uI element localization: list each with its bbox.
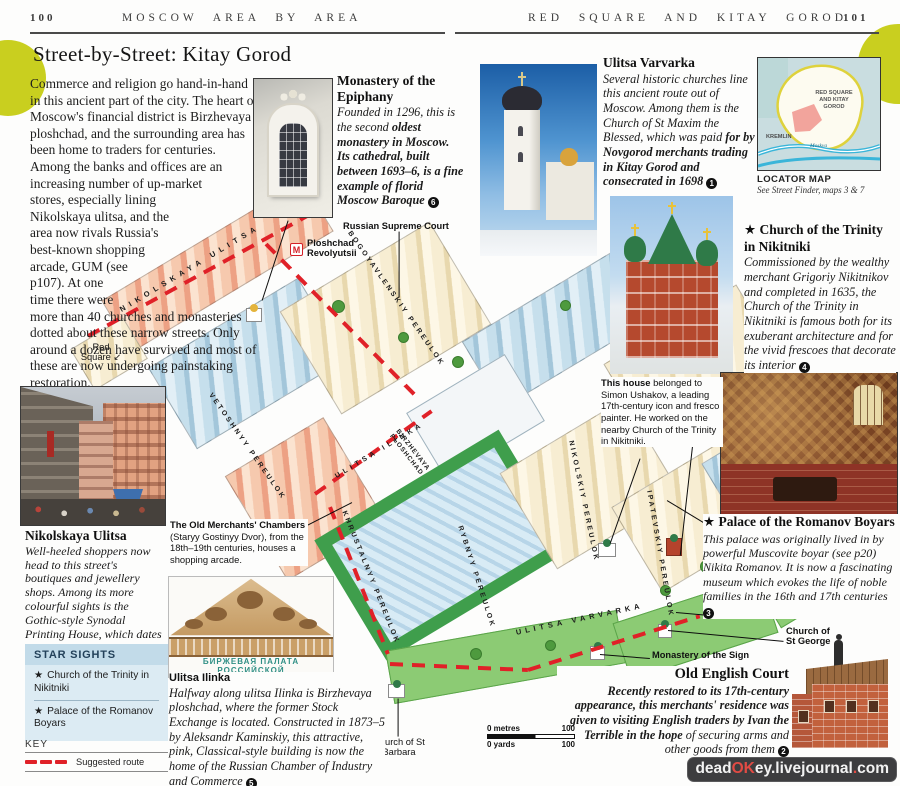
window: [846, 700, 857, 713]
key-row: Suggested route: [25, 753, 168, 771]
st-barbara-marker: [388, 684, 405, 698]
gold-cross: [634, 224, 636, 236]
snow-ground: [480, 230, 597, 256]
locator-subcaption: See Street Finder, maps 3 & 7: [757, 185, 881, 195]
callout-line: [397, 699, 398, 737]
scale-yards-max: 100: [562, 740, 575, 749]
title-bold: The Old Merchants' Chambers: [170, 519, 305, 530]
relief-figure: [185, 619, 203, 629]
relief-figure: [273, 607, 295, 621]
pink-building: [79, 421, 113, 501]
annotation-romanov: ★ Palace of the Romanov Boyars This pala…: [703, 514, 898, 619]
star-sight-item: ★Church of the Trinity in Nikitniki: [25, 665, 168, 700]
route-dash-swatch: [55, 760, 67, 764]
key-title: KEY: [25, 739, 168, 750]
illustration-old-english-court: [790, 638, 896, 758]
sight-number-badge: 4: [799, 362, 810, 373]
locator-map: RED SQUARE AND KITAY GOROD KREMLIN Moskv…: [757, 57, 881, 195]
annotation-ilinka: Ulitsa Ilinka Halfway along ulitsa Ilink…: [169, 672, 385, 786]
gold-cross: [706, 228, 708, 240]
star-icon: ★: [34, 706, 43, 717]
interior-window: [853, 385, 883, 425]
brick-building: [812, 684, 888, 748]
church-cross: [521, 72, 523, 86]
locator-river-label: Moskva: [809, 143, 827, 149]
photo-trinity-church: [610, 196, 733, 374]
tree: [398, 332, 409, 343]
watermark: deadOKey.livejournal.com: [688, 758, 896, 781]
window: [868, 700, 879, 713]
sight-number-badge: 6: [428, 197, 439, 208]
locator-area-label-1: RED SQUARE: [815, 90, 853, 96]
scale-yards-zero: 0 yards: [487, 740, 515, 749]
tree: [470, 648, 482, 660]
wm-part: OK: [732, 760, 755, 777]
metro-icon: M: [290, 243, 303, 256]
tree: [560, 300, 571, 311]
street-crowd: [21, 499, 165, 525]
window: [824, 700, 835, 713]
body-text: Well-heeled shoppers now head to this st…: [25, 544, 162, 655]
scale-bar-graphic: [487, 734, 575, 739]
route-dash-swatch: [25, 760, 37, 764]
sight-number-badge: 5: [246, 778, 257, 786]
annotation-title: Monastery of the Epiphany: [337, 73, 465, 104]
locator-kremlin-label: KREMLIN: [766, 134, 791, 140]
photo-varvarka-church: [480, 64, 597, 256]
body-text: Commissioned by the wealthy merchant Gri…: [744, 255, 896, 371]
annotation-trinity: ★ Church of the Trinity in Nikitniki Com…: [744, 222, 896, 373]
title-text: Palace of the Romanov Boyars: [718, 514, 894, 529]
rule: [25, 771, 168, 772]
annotation-body: Well-heeled shoppers now head to this st…: [25, 545, 167, 656]
tented-roof: [648, 214, 696, 264]
locator-map-graphic: RED SQUARE AND KITAY GOROD KREMLIN Moskv…: [757, 57, 881, 171]
scale-bar: 0 metres 100 0 yards 100: [487, 724, 575, 749]
window: [798, 710, 809, 723]
photo-epiphany-window: [253, 78, 333, 218]
scale-metres-max: 100: [562, 724, 575, 733]
baroque-ornament: [276, 89, 310, 103]
lead-bold: This house: [601, 377, 650, 388]
callout-line: [398, 232, 399, 298]
star-icon: ★: [703, 514, 715, 530]
body-text: (Staryy Gostinyy Dvor), from the 18th–19…: [170, 531, 304, 565]
star-sight-item: ★Palace of the Romanov Boyars: [25, 701, 168, 736]
locator-area-label-2: AND KITAY: [819, 97, 849, 103]
book-page: 100 MOSCOW AREA BY AREA RED SQUARE AND K…: [0, 0, 900, 786]
annotation-ushakov-house: This house belonged to Simon Ushakov, a …: [601, 377, 723, 447]
tower-window: [518, 152, 523, 162]
label-monastery-of-the-sign: Monastery of the Sign: [652, 650, 749, 660]
onion-dome: [696, 240, 718, 266]
figure-silhouette: [834, 640, 843, 666]
sight-number-badge: 2: [778, 746, 789, 757]
route-dash-swatch: [40, 760, 52, 764]
wm-part: dead: [695, 760, 731, 777]
relief-figure: [299, 619, 317, 629]
photo-merchants-pediment: БИРЖЕВАЯ ПАЛАТА РОССИЙСКОЙ: [168, 576, 334, 678]
annotation-body: Commissioned by the wealthy merchant Gri…: [744, 255, 896, 372]
relief-figure: [205, 607, 227, 621]
annotation-title: Ulitsa Varvarka: [603, 55, 755, 71]
title-text: Church of the Trinity in Nikitniki: [744, 222, 883, 254]
label-russian-supreme-court: Russian Supreme Court: [343, 221, 449, 231]
annotation-body: Recently restored to its 17th-century ap…: [557, 684, 789, 758]
sight-number-badge: 1: [706, 178, 717, 189]
entablature: [169, 637, 333, 657]
wm-part: com: [857, 760, 889, 777]
annotation-body: This palace was originally lived in by p…: [703, 532, 898, 619]
wm-part: livejournal: [775, 760, 853, 777]
annotation-epiphany: Monastery of the Epiphany Founded in 129…: [337, 73, 465, 208]
window-glass: [279, 123, 307, 187]
photo-nikolskaya-street: [20, 386, 166, 526]
star-sights-box: STAR SIGHTS ★Church of the Trinity in Ni…: [25, 644, 168, 741]
annotation-title: Nikolskaya Ulitsa: [25, 528, 167, 544]
body-text: This palace was originally lived in by p…: [703, 532, 892, 604]
intro-paragraph: Commerce and religion go hand-in-hand in…: [30, 76, 259, 392]
gold-dome: [560, 148, 578, 166]
annotation-body: Several historic churches line this anci…: [603, 72, 755, 189]
tower-window: [518, 126, 523, 136]
ushakov-house-marker: [598, 543, 616, 557]
table-silhouette: [773, 477, 837, 501]
photo-romanov-interior: [720, 372, 898, 520]
church-side-building: [546, 162, 594, 220]
body-text: Halfway along ulitsa Ilinka is Birzhevay…: [169, 686, 385, 786]
locator-area-label-3: GOROD: [823, 104, 844, 110]
annotation-title: ★ Church of the Trinity in Nikitniki: [744, 222, 896, 254]
scale-metres-zero: 0 metres: [487, 724, 520, 733]
annotation-varvarka: Ulitsa Varvarka Several historic churche…: [603, 55, 755, 189]
locator-caption: LOCATOR MAP: [757, 174, 881, 185]
star-icon: ★: [34, 670, 43, 681]
star-sights-title: STAR SIGHTS: [25, 644, 168, 665]
tree: [452, 356, 464, 368]
relief-figure: [237, 591, 263, 609]
annotation-title: Old English Court: [557, 666, 789, 683]
map-key: KEY Suggested route: [25, 739, 168, 772]
annotation-title: Ulitsa Ilinka: [169, 672, 385, 685]
key-route-label: Suggested route: [76, 757, 144, 767]
annotation-old-english-court: Old English Court Recently restored to i…: [557, 666, 789, 757]
star-sight-label: Church of the Trinity in Nikitniki: [34, 670, 149, 694]
star-sight-label: Palace of the Romanov Boyars: [34, 706, 153, 730]
sight-number-badge: 3: [703, 608, 714, 619]
tree: [545, 640, 556, 651]
annotation-body: Halfway along ulitsa Ilinka is Birzhevay…: [169, 686, 385, 786]
shop-sign: [47, 431, 54, 457]
annotation-title: ★ Palace of the Romanov Boyars: [703, 514, 898, 531]
label-ploshchad-revolyutsii: Ploshchad Revolyutsii: [307, 238, 369, 259]
onion-dome: [624, 236, 646, 262]
wm-part: ey: [755, 760, 771, 777]
annotation-merchants-chambers: The Old Merchants' Chambers (Staryy Gost…: [170, 519, 308, 566]
annotation-body: Founded in 1296, this is the second olde…: [337, 105, 465, 208]
gold-cross: [671, 202, 673, 214]
church-body: [626, 260, 718, 358]
star-icon: ★: [744, 222, 756, 238]
annotation-nikolskaya: Nikolskaya Ulitsa Well-heeled shoppers n…: [25, 528, 167, 656]
